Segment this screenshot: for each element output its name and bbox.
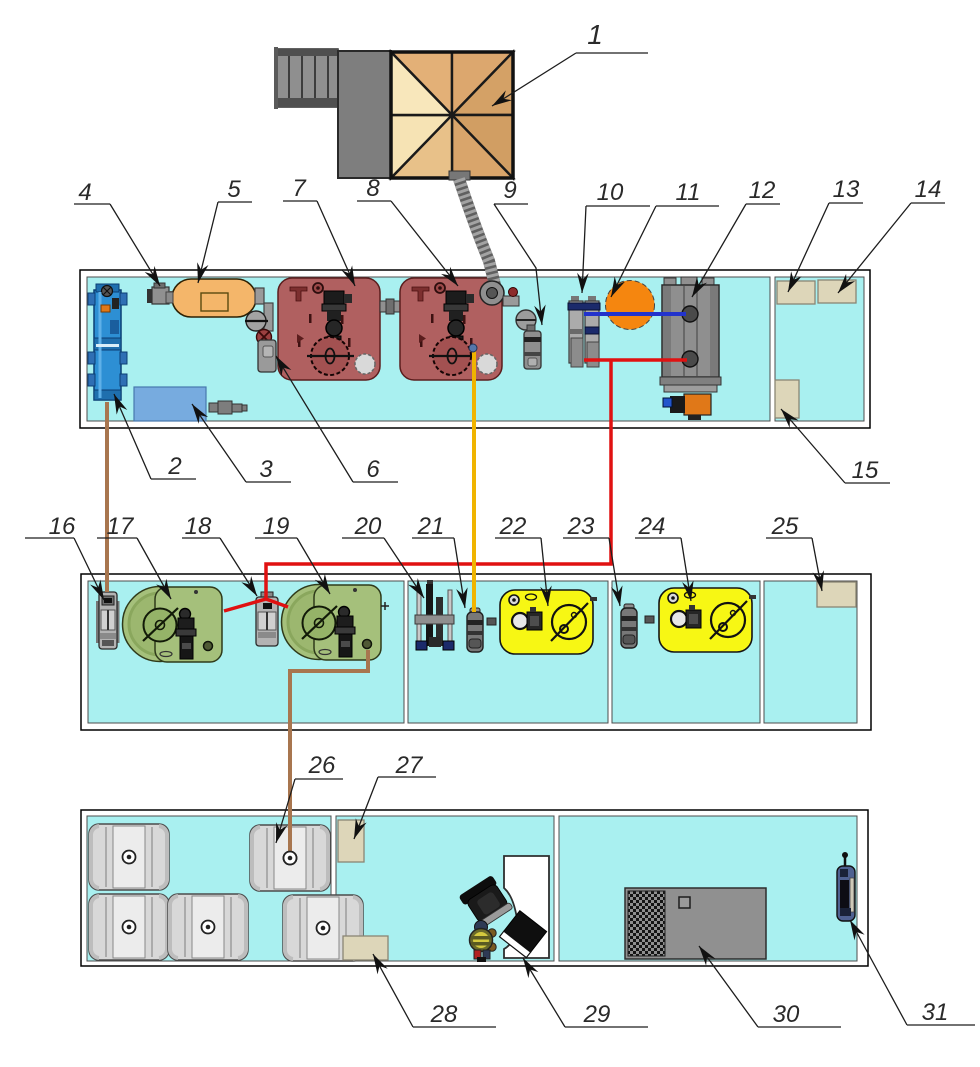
svg-text:16: 16 xyxy=(49,513,76,540)
svg-text:25: 25 xyxy=(771,513,799,540)
svg-text:13: 13 xyxy=(833,176,860,203)
svg-text:17: 17 xyxy=(107,513,135,540)
svg-text:5: 5 xyxy=(227,176,241,203)
svg-text:29: 29 xyxy=(583,1001,611,1028)
svg-text:14: 14 xyxy=(915,176,942,203)
svg-text:9: 9 xyxy=(503,177,516,204)
svg-text:4: 4 xyxy=(78,179,91,206)
svg-text:1: 1 xyxy=(587,19,603,50)
svg-text:27: 27 xyxy=(395,752,424,779)
svg-text:18: 18 xyxy=(185,513,212,540)
svg-text:21: 21 xyxy=(417,513,445,540)
svg-text:30: 30 xyxy=(773,1001,800,1028)
svg-text:3: 3 xyxy=(259,456,273,483)
svg-text:31: 31 xyxy=(922,999,949,1026)
svg-text:19: 19 xyxy=(263,513,290,540)
svg-text:11: 11 xyxy=(676,179,701,206)
svg-text:20: 20 xyxy=(354,513,382,540)
svg-text:7: 7 xyxy=(292,175,307,202)
svg-text:23: 23 xyxy=(567,513,595,540)
svg-text:22: 22 xyxy=(499,513,527,540)
svg-text:6: 6 xyxy=(366,456,380,483)
svg-text:26: 26 xyxy=(308,752,336,779)
svg-text:10: 10 xyxy=(597,179,624,206)
svg-text:2: 2 xyxy=(167,453,181,480)
svg-text:8: 8 xyxy=(366,175,380,202)
svg-text:15: 15 xyxy=(852,457,879,484)
svg-text:12: 12 xyxy=(749,177,776,204)
svg-text:24: 24 xyxy=(638,513,666,540)
svg-text:28: 28 xyxy=(430,1001,458,1028)
